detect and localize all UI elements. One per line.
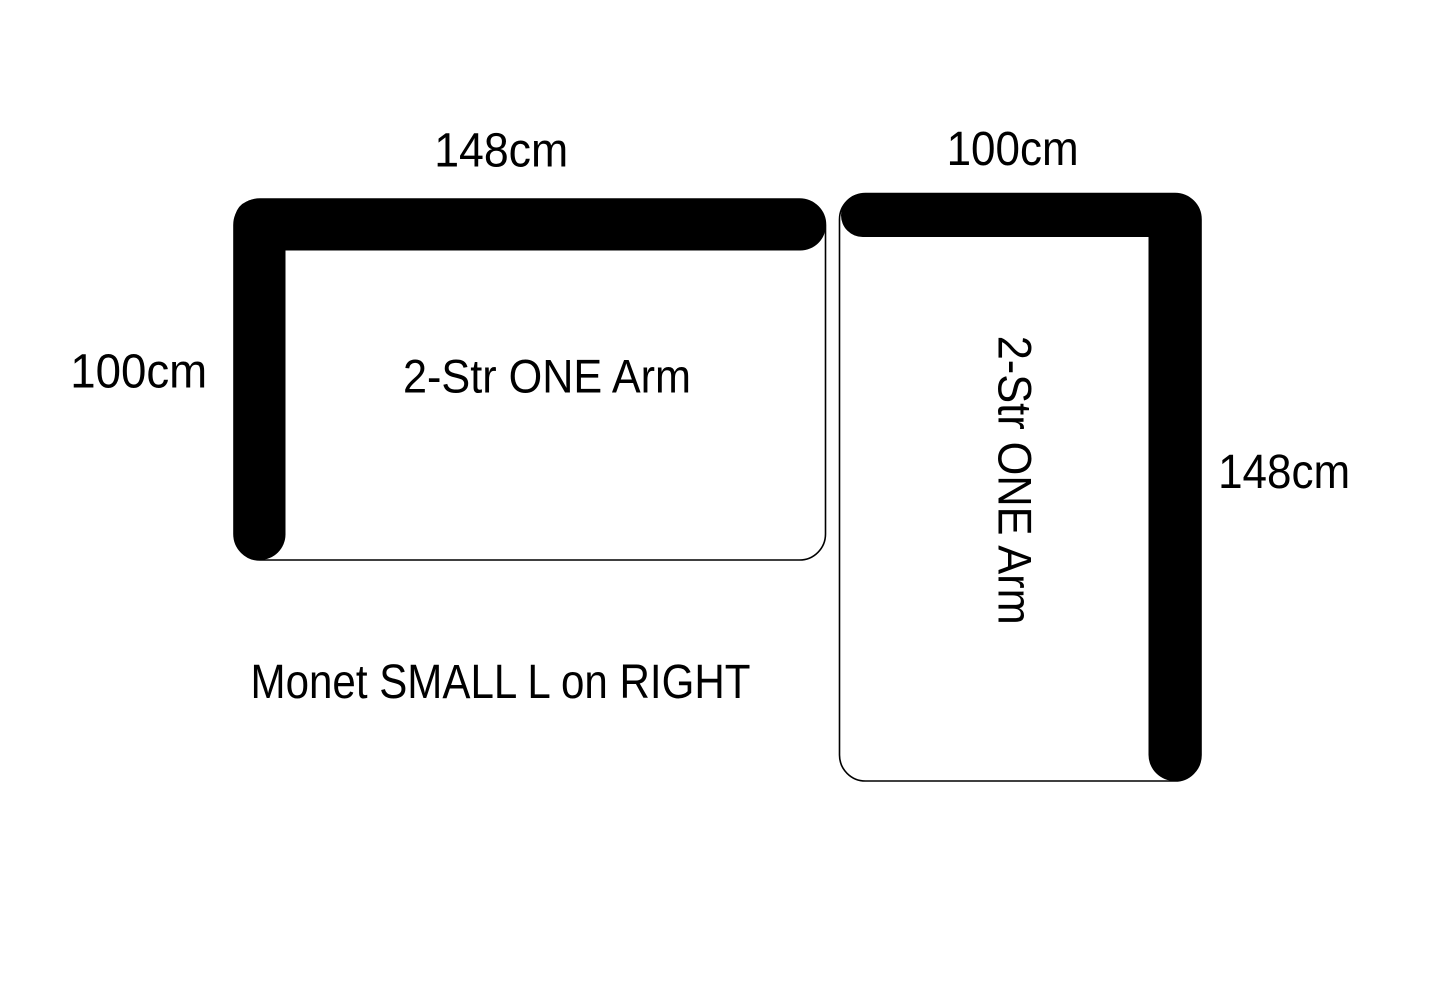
svg-text:Monet SMALL L on RIGHT: Monet SMALL L on RIGHT	[251, 656, 751, 709]
svg-text:148cm: 148cm	[1218, 446, 1350, 499]
svg-text:100cm: 100cm	[70, 345, 207, 398]
svg-text:2-Str ONE Arm: 2-Str ONE Arm	[988, 336, 1041, 625]
svg-text:148cm: 148cm	[434, 125, 568, 178]
svg-text:2-Str ONE Arm: 2-Str ONE Arm	[403, 350, 691, 403]
svg-text:100cm: 100cm	[947, 123, 1079, 176]
